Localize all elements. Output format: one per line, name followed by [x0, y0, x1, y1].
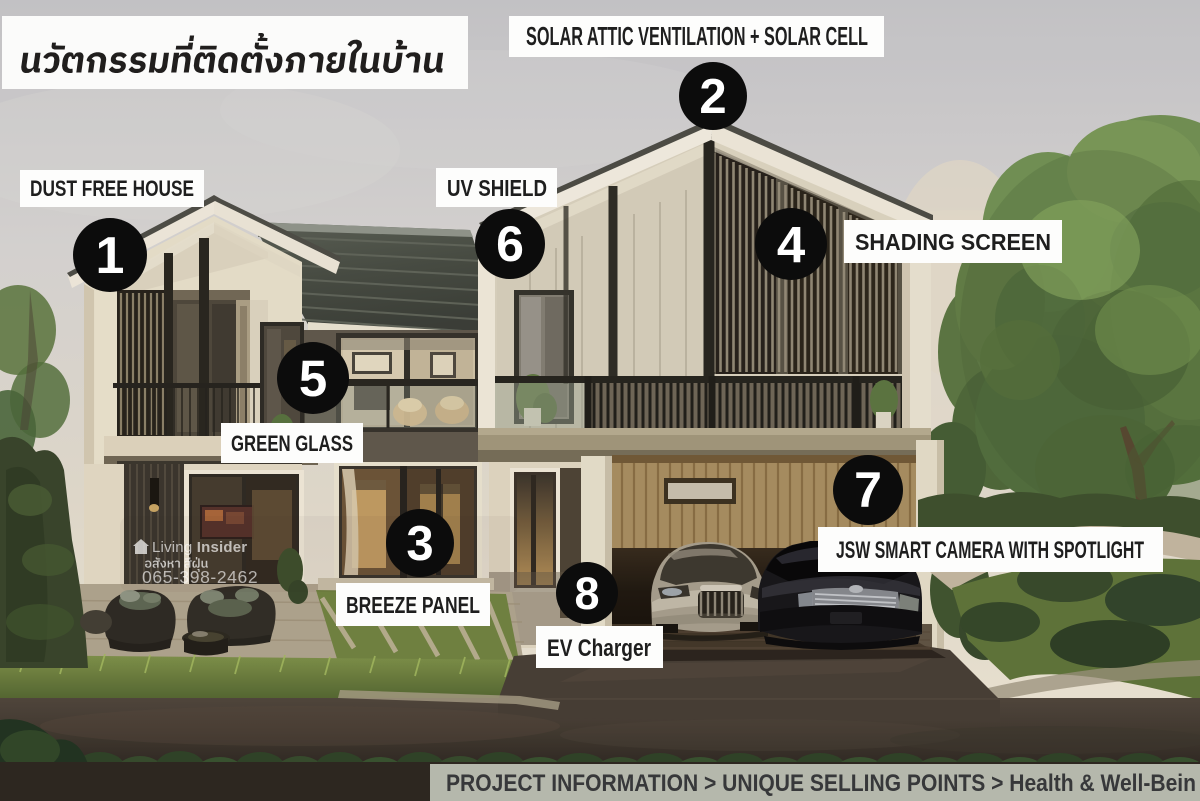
svg-text:GREEN GLASS: GREEN GLASS [231, 431, 353, 456]
svg-text:EV Charger: EV Charger [547, 635, 651, 662]
svg-text:2: 2 [699, 70, 726, 124]
svg-text:BREEZE PANEL: BREEZE PANEL [346, 592, 480, 618]
svg-text:5: 5 [299, 350, 327, 407]
svg-text:PROJECT INFORMATION > UNIQUE S: PROJECT INFORMATION > UNIQUE SELLING POI… [446, 770, 1196, 797]
svg-text:SOLAR ATTIC VENTILATION + SOLA: SOLAR ATTIC VENTILATION + SOLAR CELL [526, 21, 868, 51]
svg-text:JSW SMART CAMERA WITH SPOTLIG: JSW SMART CAMERA WITH SPOTLIGHT [836, 537, 1144, 564]
svg-text:6: 6 [496, 216, 524, 272]
svg-text:8: 8 [574, 568, 599, 619]
svg-text:3: 3 [406, 517, 433, 571]
svg-text:4: 4 [777, 216, 806, 273]
svg-text:UV SHIELD: UV SHIELD [447, 175, 547, 201]
svg-text:DUST FREE HOUSE: DUST FREE HOUSE [30, 176, 194, 201]
svg-text:1: 1 [96, 227, 125, 285]
svg-text:SHADING SCREEN: SHADING SCREEN [855, 229, 1051, 255]
svg-text:7: 7 [854, 462, 882, 518]
